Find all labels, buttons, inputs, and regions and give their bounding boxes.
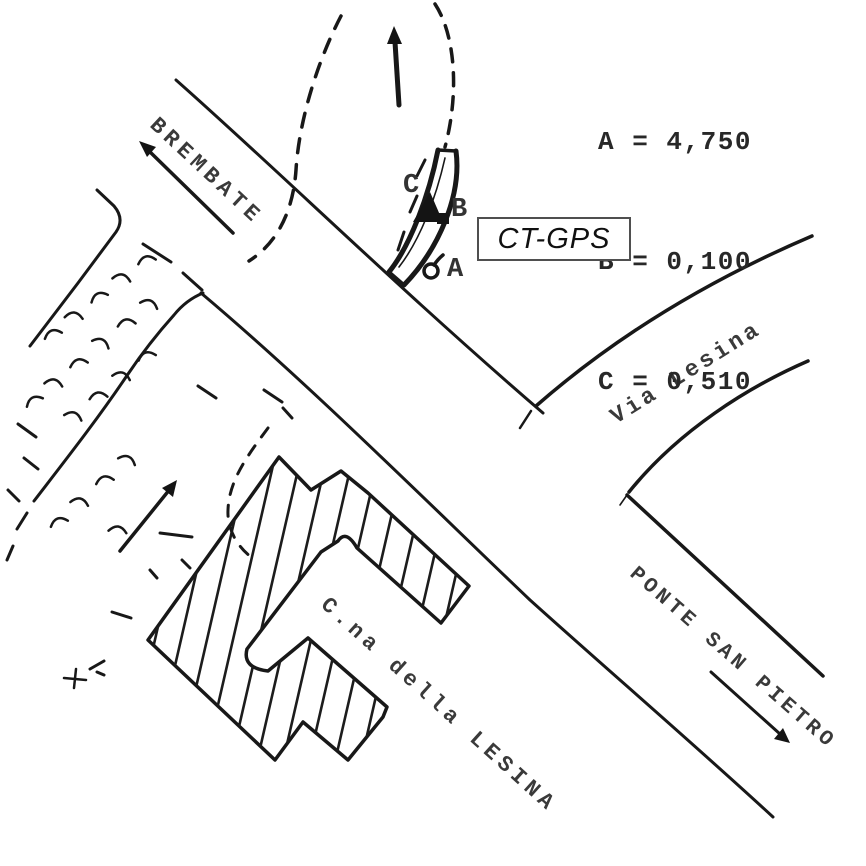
station-name-label: CT-GPS xyxy=(498,223,611,256)
measurement-a: A = 4,750 xyxy=(598,122,752,162)
side-road-texture-ticks xyxy=(24,254,159,533)
direction-arrow-side-road xyxy=(120,480,177,551)
point-label-c: C xyxy=(403,171,419,201)
side-road-nw-dashes xyxy=(8,424,38,501)
point-label-b: B xyxy=(451,195,467,225)
point-symbol-tail xyxy=(434,255,443,265)
north-track-left-dashed-edge xyxy=(249,16,341,261)
point-symbol-circle xyxy=(424,264,438,278)
building-label: C.na della LESINA xyxy=(315,593,562,819)
gps-station-marker-foot xyxy=(437,213,449,224)
side-road-ne-edge-dashes xyxy=(7,513,27,560)
point-label-a: A xyxy=(447,255,464,285)
field-boundary-dashed xyxy=(228,428,268,557)
main-road-lower-edge-dashes xyxy=(143,244,202,290)
building-footprint xyxy=(148,457,469,760)
direction-arrow-north xyxy=(387,26,402,105)
measurement-c: C = 0,510 xyxy=(598,362,752,402)
north-track-right-dashed-edge xyxy=(435,4,454,147)
station-name-box: CT-GPS xyxy=(477,217,631,261)
road-label-brembate: BREMBATE xyxy=(144,113,268,231)
corner-tick xyxy=(620,495,627,505)
survey-sketch-map: BREMBATE Via Lesina PONTE SAN PIETRO C.n… xyxy=(0,0,866,866)
plus-survey-mark xyxy=(64,669,86,688)
junction-tick xyxy=(520,411,531,428)
offset-measurements: A = 4,750 B = 0,100 C = 0,510 xyxy=(598,42,752,482)
main-road-lower-edge-west xyxy=(30,190,120,346)
